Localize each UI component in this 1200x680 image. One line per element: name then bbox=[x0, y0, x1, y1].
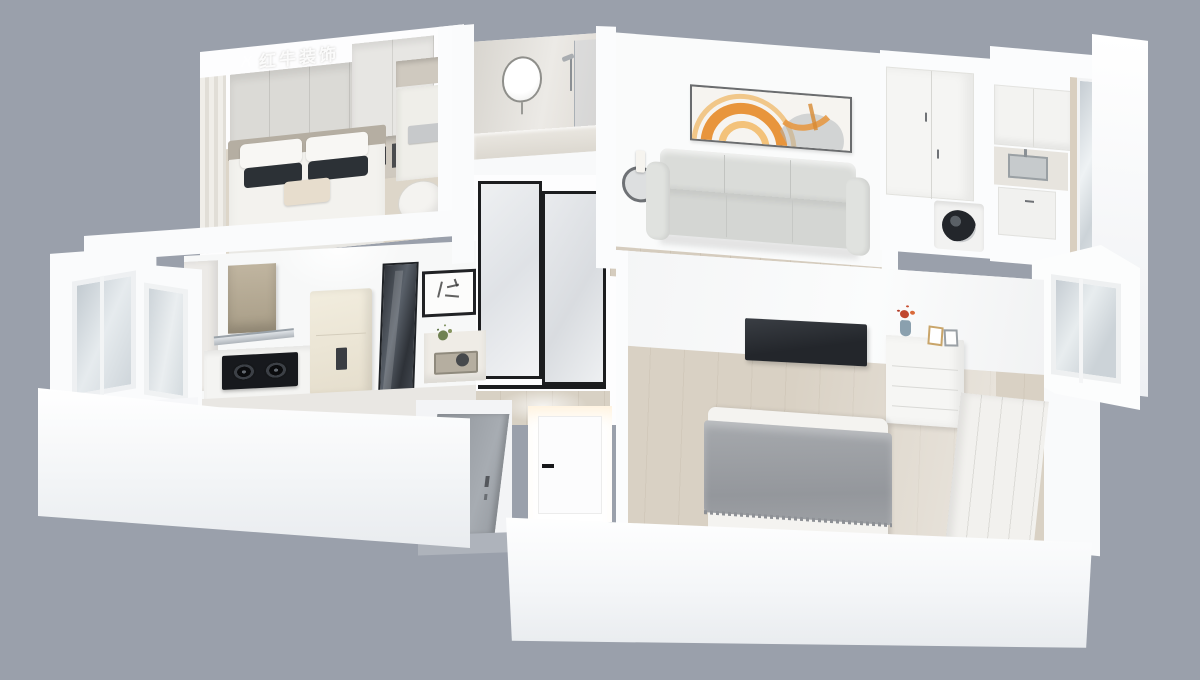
washing-machine bbox=[934, 200, 984, 252]
drawer-seam bbox=[892, 405, 958, 411]
window-mullion bbox=[1079, 279, 1083, 384]
seat-seam bbox=[792, 200, 793, 242]
flower-vase bbox=[900, 320, 911, 337]
door-handle bbox=[484, 476, 489, 487]
plant bbox=[438, 330, 448, 341]
upper-cabinet bbox=[994, 84, 1072, 151]
bay-window-glass bbox=[1051, 274, 1121, 384]
frosted-sliding-door-left bbox=[478, 181, 542, 379]
hallway bbox=[468, 175, 616, 425]
watermark-bull-logo-icon bbox=[240, 53, 255, 70]
cabinet-seam bbox=[1033, 89, 1034, 147]
fridge-control-panel bbox=[336, 347, 347, 370]
sofa-armrest bbox=[846, 177, 870, 257]
wall-mounted-tv bbox=[745, 318, 867, 366]
burner bbox=[264, 361, 288, 380]
photo-frame bbox=[944, 329, 959, 346]
sink-counter bbox=[994, 146, 1068, 190]
bathroom bbox=[470, 32, 610, 192]
faucet bbox=[1024, 149, 1027, 157]
brush-stroke bbox=[437, 282, 443, 298]
washer-door bbox=[942, 209, 976, 244]
bay-window-glass bbox=[72, 270, 136, 399]
wood-trim bbox=[1070, 77, 1077, 256]
laptop bbox=[408, 123, 440, 144]
brush-stroke bbox=[445, 294, 459, 297]
burner bbox=[232, 362, 256, 381]
utility-balcony bbox=[990, 46, 1108, 271]
cabinet-handle bbox=[1025, 200, 1034, 203]
three-seat-sofa bbox=[652, 147, 864, 268]
drawer-seam bbox=[892, 385, 958, 391]
seat-seam bbox=[726, 195, 727, 237]
accent-pillow bbox=[284, 177, 330, 206]
fridge-door-seam bbox=[316, 332, 366, 336]
door-seam bbox=[931, 71, 932, 199]
shower-pipe bbox=[570, 57, 572, 91]
candle bbox=[636, 150, 645, 173]
drawer-seam bbox=[892, 365, 958, 371]
red-flowers bbox=[900, 310, 909, 319]
door-alcove bbox=[528, 406, 612, 522]
bay-window-glass bbox=[144, 283, 188, 402]
calligraphy-art bbox=[422, 269, 476, 318]
gas-cooktop bbox=[222, 352, 298, 390]
two-door-wardrobe bbox=[886, 66, 974, 201]
sofa-armrest bbox=[646, 161, 670, 241]
laundry-nook bbox=[880, 50, 992, 259]
door-handle bbox=[925, 113, 927, 122]
photo-frame bbox=[927, 325, 943, 346]
interior-wall bbox=[452, 24, 474, 264]
cushion-seam bbox=[790, 160, 791, 198]
gray-throw-blanket bbox=[704, 420, 892, 525]
door-handle bbox=[542, 464, 554, 468]
door-lock bbox=[484, 494, 488, 500]
outer-wall-patch bbox=[1040, 378, 1100, 556]
abstract-wall-art bbox=[690, 84, 852, 153]
cushion-seam bbox=[724, 155, 725, 193]
art-canvas bbox=[692, 86, 850, 150]
sink bbox=[1008, 154, 1048, 181]
floorplan-render-scene: 红牛装饰 bbox=[0, 0, 1200, 680]
interior-wall bbox=[596, 26, 616, 269]
window-mullion bbox=[100, 276, 104, 397]
refrigerator bbox=[310, 288, 372, 395]
mirror-stand bbox=[521, 102, 523, 114]
console-table bbox=[424, 330, 486, 383]
door-handle bbox=[937, 149, 939, 158]
lower-cabinet bbox=[998, 187, 1056, 240]
dresser bbox=[886, 335, 964, 428]
range-hood bbox=[228, 263, 276, 334]
